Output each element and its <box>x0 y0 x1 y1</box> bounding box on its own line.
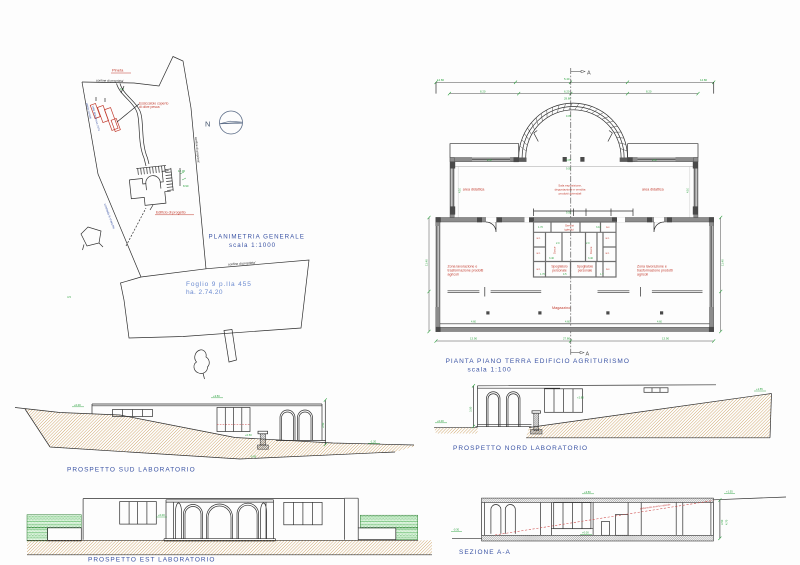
svg-text:ha. 2.74.20: ha. 2.74.20 <box>186 289 223 296</box>
svg-text:+0.50: +0.50 <box>245 433 252 437</box>
svg-text:w.c.: w.c. <box>537 252 541 255</box>
svg-text:13.90: 13.90 <box>470 337 477 341</box>
svg-text:13.90: 13.90 <box>662 337 669 341</box>
svg-text:w.c.: w.c. <box>606 237 610 240</box>
svg-text:6.20: 6.20 <box>564 90 570 94</box>
svg-text:-0.30: -0.30 <box>453 527 460 531</box>
svg-text:agricoli: agricoli <box>448 272 459 276</box>
svg-text:9.05: 9.05 <box>566 168 571 171</box>
svg-text:1.70: 1.70 <box>538 226 543 229</box>
svg-text:9.05: 9.05 <box>566 115 571 118</box>
svg-text:N: N <box>205 120 210 129</box>
svg-text:2.0: 2.0 <box>586 242 590 245</box>
svg-text:11.40: 11.40 <box>721 259 725 266</box>
svg-text:A: A <box>586 352 590 358</box>
svg-text:PIANTA PIANO TERRA EDIFICIO AG: PIANTA PIANO TERRA EDIFICIO AGRITURISMO <box>446 358 630 365</box>
svg-text:3.40: 3.40 <box>588 257 593 260</box>
svg-text:+1.55: +1.55 <box>726 490 733 494</box>
svg-text:Magazzino: Magazzino <box>552 306 570 310</box>
svg-text:PLANIMETRIA GENERALE: PLANIMETRIA GENERALE <box>209 234 305 241</box>
svg-text:Docce: Docce <box>589 246 593 254</box>
svg-text:4.60: 4.60 <box>657 321 662 324</box>
svg-text:4.60: 4.60 <box>487 159 492 162</box>
svg-text:+1.55: +1.55 <box>756 387 763 391</box>
svg-text:SEZIONE A-A: SEZIONE A-A <box>459 549 511 556</box>
svg-text:4.60: 4.60 <box>471 321 476 324</box>
svg-text:-0.95: -0.95 <box>250 455 257 459</box>
svg-text:confine di proprieta': confine di proprieta' <box>96 79 124 83</box>
svg-text:14.80: 14.80 <box>437 78 444 82</box>
svg-text:igienici: igienici <box>565 228 575 232</box>
svg-text:4.70: 4.70 <box>725 519 729 525</box>
svg-text:prodotti aziendali: prodotti aziendali <box>559 192 582 196</box>
svg-text:personale: personale <box>578 269 593 273</box>
svg-text:8.20: 8.20 <box>480 90 486 94</box>
svg-text:8.20: 8.20 <box>646 90 652 94</box>
svg-text:+0.00: +0.00 <box>582 530 589 534</box>
svg-text:4.5: 4.5 <box>67 295 71 299</box>
svg-text:w.c.: w.c. <box>606 226 610 229</box>
svg-text:4.60: 4.60 <box>652 159 657 162</box>
svg-text:1.7: 1.7 <box>600 273 604 276</box>
svg-text:4.10: 4.10 <box>686 188 689 193</box>
svg-text:PROSPETTO SUD LABORATORIO: PROSPETTO SUD LABORATORIO <box>67 467 196 474</box>
svg-text:3.50: 3.50 <box>469 406 473 412</box>
svg-text:agricoli: agricoli <box>637 272 648 276</box>
svg-text:A: A <box>587 71 591 77</box>
svg-text:+0.00: +0.00 <box>158 513 165 517</box>
svg-text:w.c.: w.c. <box>606 268 610 271</box>
svg-text:8.90: 8.90 <box>183 184 189 188</box>
svg-text:di olive pesca: di olive pesca <box>139 105 160 109</box>
svg-text:contrada le macchie: contrada le macchie <box>103 203 116 230</box>
svg-text:3.50: 3.50 <box>720 519 724 525</box>
svg-text:PROSPETTO EST LABORATORIO: PROSPETTO EST LABORATORIO <box>88 556 215 563</box>
svg-text:w.c.: w.c. <box>606 252 610 255</box>
svg-text:14.80: 14.80 <box>700 78 707 82</box>
svg-text:3.40: 3.40 <box>549 257 554 260</box>
svg-text:4.60: 4.60 <box>565 321 570 324</box>
svg-text:w.c.: w.c. <box>537 237 541 240</box>
svg-text:Pineta: Pineta <box>112 68 124 73</box>
svg-text:Foglio 9 p.lla 455: Foglio 9 p.lla 455 <box>186 281 252 288</box>
svg-text:area didattica: area didattica <box>642 188 664 192</box>
svg-text:3.50: 3.50 <box>321 422 325 428</box>
svg-text:4.10: 4.10 <box>458 188 461 193</box>
svg-text:9.05: 9.05 <box>566 212 571 215</box>
svg-text:+2.80: +2.80 <box>577 396 584 400</box>
svg-text:-1.20: -1.20 <box>370 439 377 443</box>
svg-text:personale: personale <box>552 269 567 273</box>
svg-text:+3.50: +3.50 <box>584 490 591 494</box>
svg-text:29.80: 29.80 <box>564 97 571 101</box>
svg-text:1.70: 1.70 <box>540 273 545 276</box>
svg-text:+0.00: +0.00 <box>74 403 81 407</box>
svg-text:Docce: Docce <box>553 246 557 254</box>
svg-text:+0.00: +0.00 <box>437 419 444 423</box>
svg-text:scala 1:1000: scala 1:1000 <box>229 242 276 249</box>
svg-text:PROSPETTO NORD LABORATORIO: PROSPETTO NORD LABORATORIO <box>453 445 588 452</box>
svg-text:5.40: 5.40 <box>564 77 570 81</box>
svg-text:andamento terreno naturale: andamento terreno naturale <box>640 503 672 510</box>
svg-text:w.c.: w.c. <box>537 268 541 271</box>
svg-text:+3.50: +3.50 <box>213 394 220 398</box>
svg-text:scala 1:100: scala 1:100 <box>468 367 512 374</box>
svg-text:Edificio di progetto: Edificio di progetto <box>156 211 186 215</box>
svg-text:11.40: 11.40 <box>425 259 429 266</box>
svg-text:27.80: 27.80 <box>563 337 570 341</box>
svg-text:4.5: 4.5 <box>563 273 567 276</box>
svg-text:12.00: 12.00 <box>178 169 185 173</box>
svg-text:2.0: 2.0 <box>556 242 560 245</box>
svg-text:3.10: 3.10 <box>596 226 601 229</box>
svg-text:area didattica: area didattica <box>463 188 485 192</box>
svg-text:9.05: 9.05 <box>566 159 571 162</box>
